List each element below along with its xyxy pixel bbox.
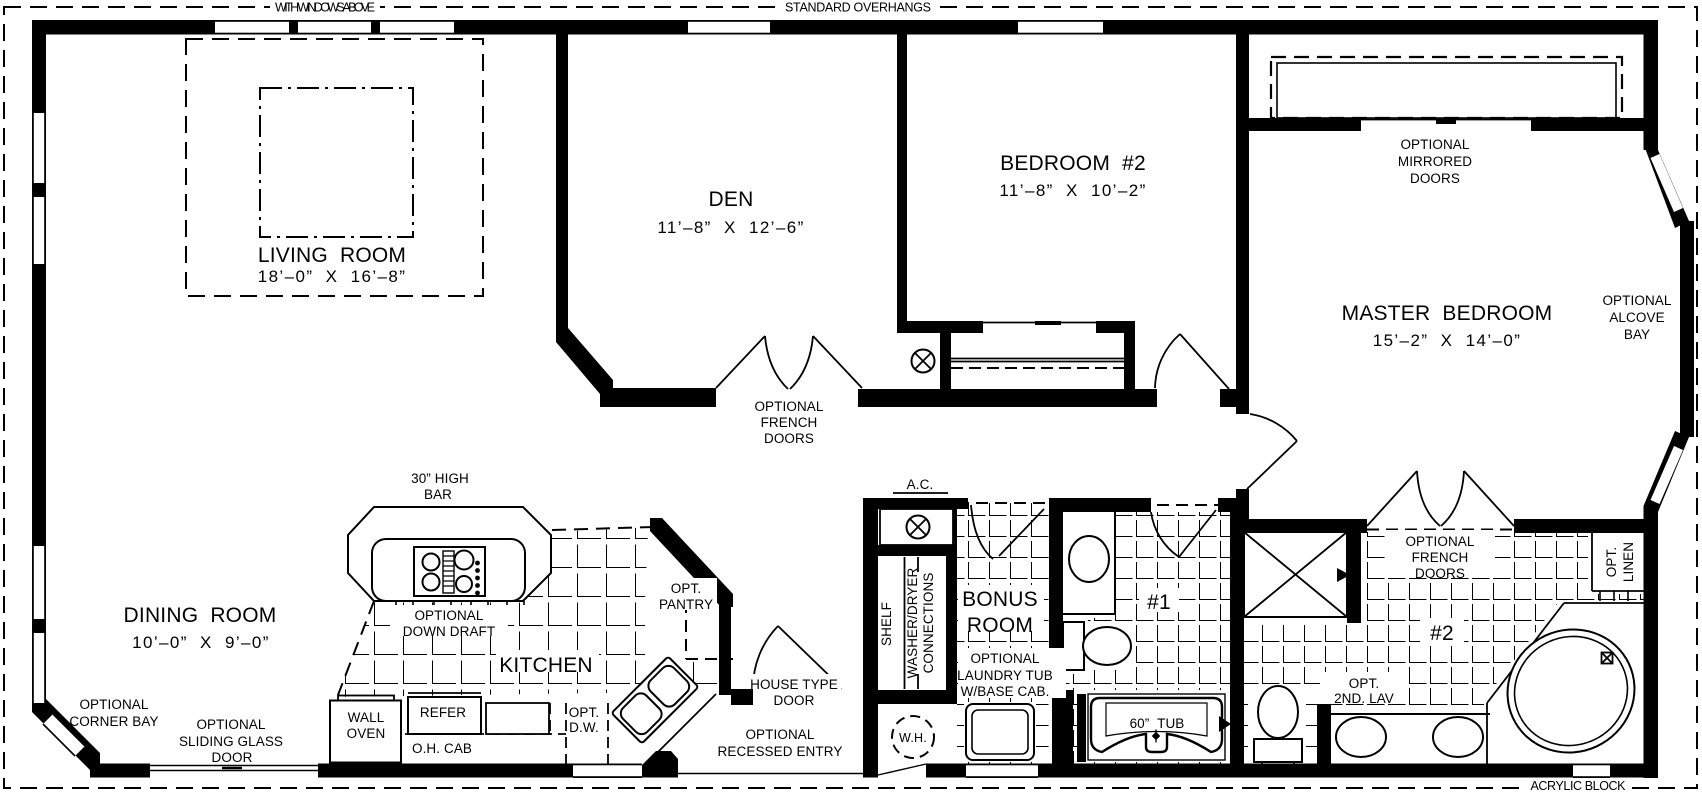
svg-text:MASTER BEDROOM: MASTER BEDROOM [1342,302,1553,325]
svg-text:11’–8” X 12’–6”: 11’–8” X 12’–6” [657,218,804,237]
svg-text:ROOM: ROOM [967,614,1033,637]
svg-text:ALCOVE: ALCOVE [1609,310,1664,325]
svg-text:OPT.: OPT. [1604,547,1619,577]
svg-text:STANDARD OVERHANGS: STANDARD OVERHANGS [785,1,931,15]
svg-text:OPT.: OPT. [1349,676,1379,691]
svg-text:DOOR: DOOR [212,750,253,765]
svg-text:REFER: REFER [420,705,466,720]
svg-text:OVEN: OVEN [347,726,386,741]
svg-text:CONNECTIONS: CONNECTIONS [921,573,936,674]
svg-text:BAR: BAR [424,487,452,502]
svg-text:W.H.: W.H. [899,731,927,745]
svg-text:SLIDING GLASS: SLIDING GLASS [179,734,283,749]
svg-text:BONUS: BONUS [962,588,1038,611]
svg-text:60” TUB: 60” TUB [1130,716,1185,731]
svg-text:PANTRY: PANTRY [659,597,713,612]
svg-text:D.W.: D.W. [569,720,599,735]
svg-text:WITH WINDOWS ABOVE: WITH WINDOWS ABOVE [275,1,375,15]
svg-text:18’–0” X 16’–8”: 18’–0” X 16’–8” [258,267,407,286]
svg-text:KITCHEN: KITCHEN [499,654,593,677]
svg-text:ACRYLIC BLOCK: ACRYLIC BLOCK [1531,779,1627,793]
svg-text:10’–0” X 9’–0”: 10’–0” X 9’–0” [132,633,270,652]
svg-text:DOORS: DOORS [1410,171,1460,186]
svg-text:WASHER/DRYER: WASHER/DRYER [905,567,920,678]
svg-text:OPTIONAL: OPTIONAL [1602,293,1671,308]
svg-text:#1: #1 [1147,591,1171,614]
svg-text:30” HIGH: 30” HIGH [411,471,469,486]
svg-text:LINEN: LINEN [1621,542,1636,582]
svg-text:A.C.: A.C. [907,477,934,492]
svg-text:OPTIONAL: OPTIONAL [745,727,814,742]
svg-text:#2: #2 [1430,622,1454,645]
svg-text:WALL: WALL [348,710,385,725]
svg-text:MIRRORED: MIRRORED [1398,154,1472,169]
svg-text:DOORS: DOORS [764,431,814,446]
svg-text:BAY: BAY [1624,327,1650,342]
svg-text:OPTIONAL: OPTIONAL [196,717,265,732]
svg-text:FRENCH: FRENCH [1412,550,1469,565]
svg-text:W/BASE CAB.: W/BASE CAB. [961,684,1050,699]
svg-text:OPTIONAL: OPTIONAL [970,651,1039,666]
svg-text:BEDROOM #2: BEDROOM #2 [1000,152,1146,175]
svg-text:OPTIONAL: OPTIONAL [754,399,823,414]
svg-text:11’–8” X 10’–2”: 11’–8” X 10’–2” [999,181,1146,200]
svg-text:OPTIONAL: OPTIONAL [79,697,148,712]
svg-text:OPTIONAL: OPTIONAL [414,608,483,623]
svg-text:15’–2” X 14’–0”: 15’–2” X 14’–0” [1373,331,1522,350]
svg-text:OPTIONAL: OPTIONAL [1405,534,1474,549]
svg-text:LAUNDRY TUB: LAUNDRY TUB [957,668,1053,683]
svg-text:O.H. CAB: O.H. CAB [412,741,472,756]
svg-text:SHELF: SHELF [879,602,894,646]
svg-text:DOWN DRAFT: DOWN DRAFT [403,624,496,639]
svg-text:HOUSE TYPE: HOUSE TYPE [750,677,838,692]
svg-text:OPT.: OPT. [569,705,599,720]
svg-text:FRENCH: FRENCH [761,415,818,430]
svg-text:DOOR: DOOR [774,693,815,708]
svg-text:OPTIONAL: OPTIONAL [1400,137,1469,152]
svg-text:OPT.: OPT. [671,581,701,596]
svg-text:DINING ROOM: DINING ROOM [124,604,277,627]
svg-text:DOORS: DOORS [1415,566,1465,581]
svg-text:DEN: DEN [709,188,754,211]
svg-text:RECESSED ENTRY: RECESSED ENTRY [718,744,843,759]
svg-text:LIVING ROOM: LIVING ROOM [258,244,406,267]
svg-text:2ND. LAV: 2ND. LAV [1334,691,1394,706]
svg-text:CORNER BAY: CORNER BAY [69,714,158,729]
